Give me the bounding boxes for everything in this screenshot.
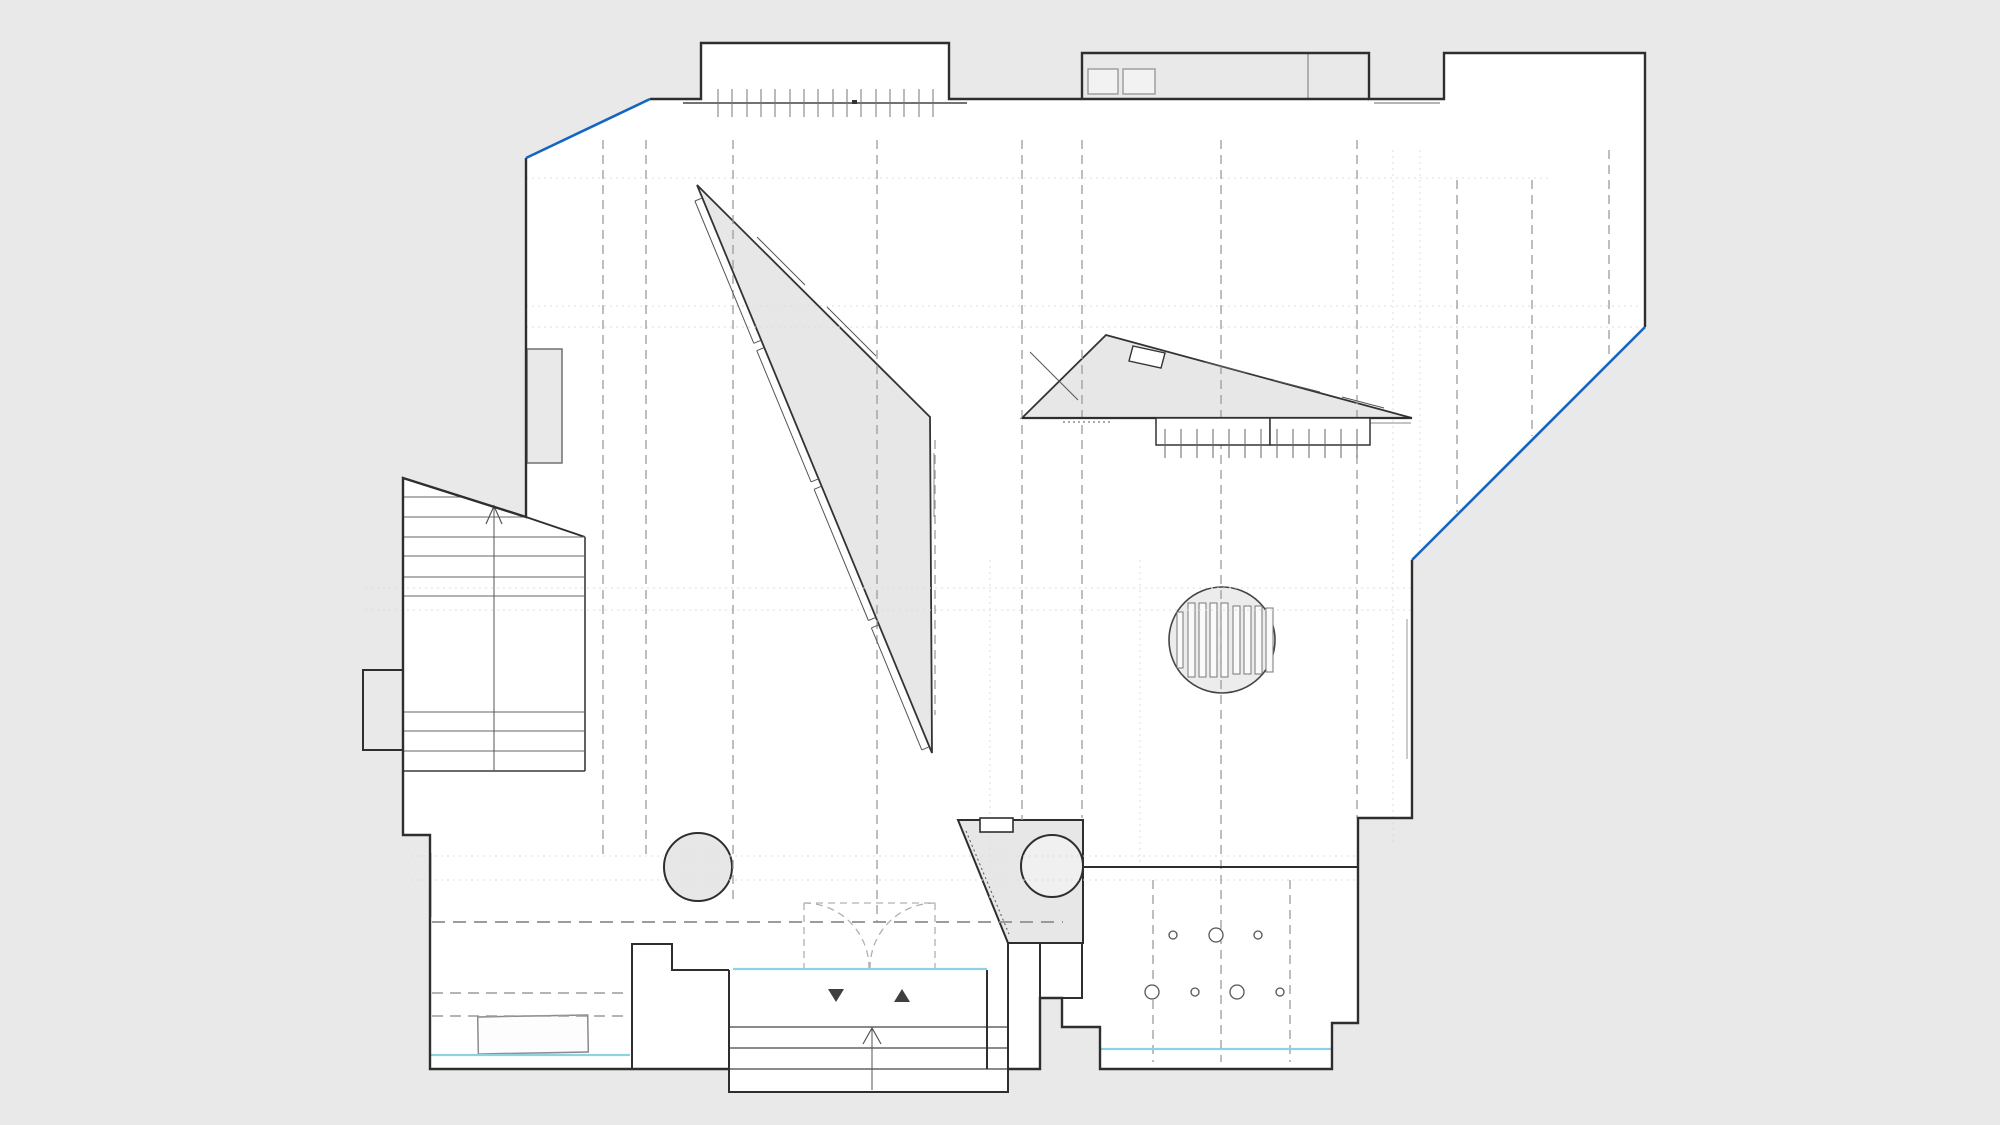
column-large: [1209, 928, 1223, 942]
louver-dot: [852, 100, 857, 104]
trapezoid-door-notch: [980, 818, 1013, 832]
entry-column-large-left: [664, 833, 732, 901]
sculpture-slat: [1221, 603, 1228, 677]
sculpture-slat: [1266, 608, 1273, 672]
sculpture-slat: [1199, 603, 1206, 677]
sculpture-slat: [1177, 612, 1183, 668]
column-small: [1169, 931, 1177, 939]
entry-column-large-right: [1021, 835, 1083, 897]
roof-skylight-2: [1123, 69, 1155, 94]
sculpture-slat: [1210, 603, 1217, 677]
sculpture-slat: [1188, 603, 1195, 677]
sculpture-slat: [1255, 606, 1262, 674]
column-small: [1276, 988, 1284, 996]
column-small: [1191, 988, 1199, 996]
balcony-box: [363, 670, 403, 750]
wall-shaft: [527, 349, 562, 463]
column-large: [1230, 985, 1244, 999]
floor-plan-stage: [0, 0, 2000, 1125]
sculpture-slat: [1233, 606, 1240, 674]
lobby-bench: [478, 1015, 589, 1054]
roof-skylight-1: [1088, 69, 1118, 94]
sculpture-slat: [1244, 606, 1251, 674]
grille-bench-right: [1270, 418, 1370, 445]
column-large: [1145, 985, 1159, 999]
floor-plan: [0, 0, 2000, 1125]
column-small: [1254, 931, 1262, 939]
